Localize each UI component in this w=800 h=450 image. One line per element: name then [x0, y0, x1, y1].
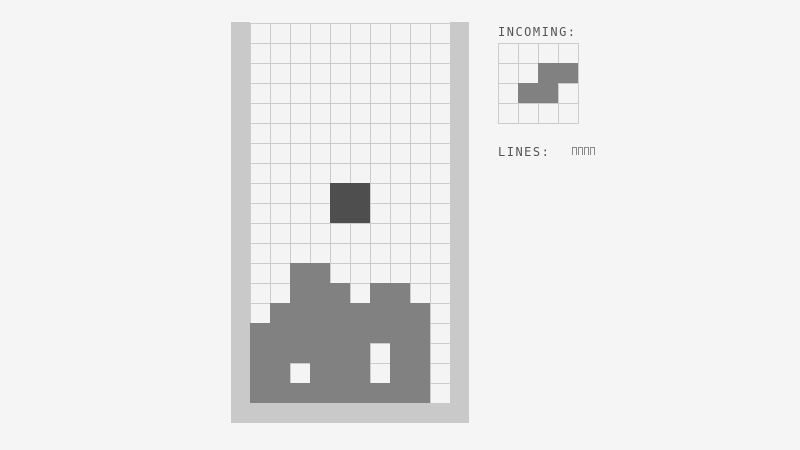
stack-block: [270, 343, 290, 363]
stack-block: [290, 263, 310, 283]
stack-block: [250, 323, 270, 343]
lines-digit-box: [590, 147, 595, 155]
stack-block: [250, 363, 270, 383]
stack-block: [390, 343, 410, 363]
stack-block: [330, 343, 350, 363]
stack-block: [350, 363, 370, 383]
stack-block: [330, 363, 350, 383]
stack-block: [350, 343, 370, 363]
stack-block: [330, 283, 350, 303]
stack-block: [370, 303, 390, 323]
stack-block: [390, 323, 410, 343]
lines-digit-box: [578, 147, 583, 155]
playfield[interactable]: [231, 22, 469, 423]
stack-block: [370, 283, 390, 303]
stack-block: [290, 383, 310, 403]
wall-bottom: [250, 403, 450, 423]
stack-block: [390, 283, 410, 303]
stack-block: [410, 363, 430, 383]
stack-block: [390, 383, 410, 403]
stack-block: [350, 383, 370, 403]
lines-label: LINES:: [498, 145, 550, 159]
wall-left: [231, 22, 250, 423]
wall-right: [450, 22, 469, 423]
stack-block: [310, 303, 330, 323]
stack-block: [270, 383, 290, 403]
stack-block: [310, 363, 330, 383]
stack-block: [250, 343, 270, 363]
stack-block: [290, 283, 310, 303]
incoming-piece-block: [518, 83, 538, 103]
incoming-piece-block: [538, 83, 558, 103]
stack-block: [410, 323, 430, 343]
lines-counter: LINES:: [498, 140, 596, 152]
stack-block: [410, 383, 430, 403]
incoming-piece-block: [558, 63, 578, 83]
stack-block: [290, 323, 310, 343]
lines-value-boxes: [572, 140, 596, 159]
stack-block: [390, 363, 410, 383]
stack-block: [310, 263, 330, 283]
falling-piece: [350, 183, 370, 203]
stack-block: [310, 383, 330, 403]
incoming-label: INCOMING:: [498, 25, 577, 39]
stack-block: [270, 323, 290, 343]
stack-block: [270, 303, 290, 323]
stack-block: [390, 303, 410, 323]
stack-block: [350, 323, 370, 343]
lines-digit-box: [572, 147, 577, 155]
stack-block: [370, 383, 390, 403]
stack-block: [310, 343, 330, 363]
falling-piece: [350, 203, 370, 223]
lines-digit-box: [584, 147, 589, 155]
stack-block: [410, 343, 430, 363]
stack-block: [250, 383, 270, 403]
falling-piece: [330, 203, 350, 223]
incoming-preview-grid: [498, 43, 579, 124]
stack-block: [290, 343, 310, 363]
stack-block: [270, 363, 290, 383]
falling-piece: [330, 183, 350, 203]
incoming-piece-block: [538, 63, 558, 83]
stack-block: [330, 383, 350, 403]
playfield-grid: [250, 23, 450, 403]
stack-block: [310, 283, 330, 303]
stack-block: [350, 303, 370, 323]
stack-block: [310, 323, 330, 343]
stack-block: [330, 323, 350, 343]
stack-block: [370, 323, 390, 343]
stack-block: [290, 303, 310, 323]
stack-block: [330, 303, 350, 323]
stack-block: [410, 303, 430, 323]
